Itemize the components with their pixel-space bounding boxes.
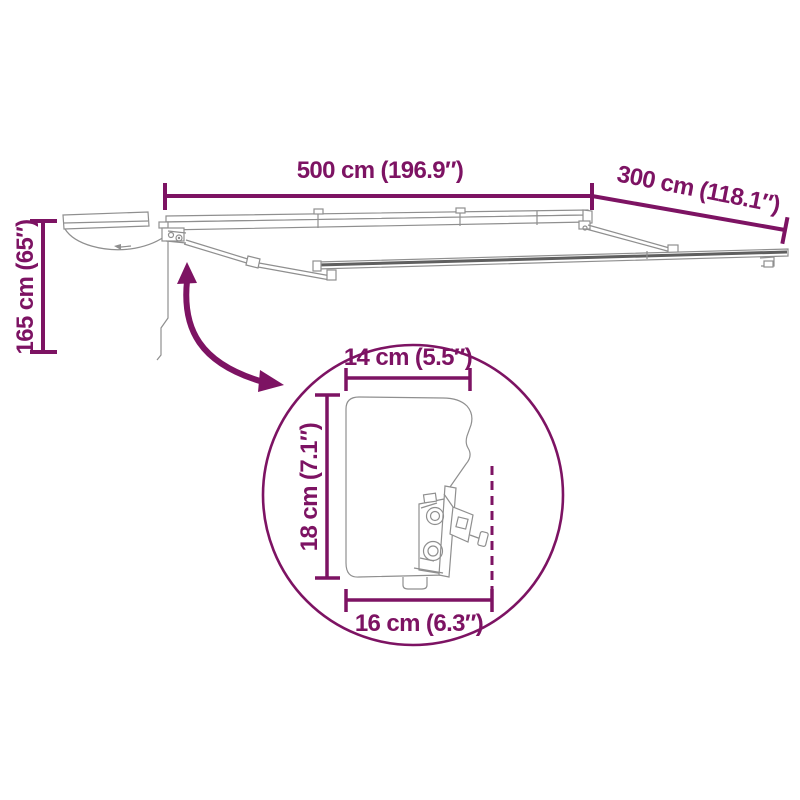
bracket-bolt-center [178, 237, 180, 239]
cassette-depth-label: 16 cm (6.3″) [355, 610, 483, 637]
cassette-width-label: 14 cm (5.5″) [344, 344, 472, 371]
cassette-height-dimension: 18 cm (7.1″) [296, 395, 340, 578]
folded-fabric-curve [65, 229, 164, 250]
rotate-arrow-icon [177, 262, 284, 392]
folded-awning-drawing [63, 212, 186, 360]
cassette-width-dimension: 14 cm (5.5″) [344, 344, 472, 391]
left-arm-segment1 [184, 244, 250, 264]
back-rail-bracket-lug [456, 208, 465, 213]
diagram-canvas: 500 cm (196.9″) 300 cm (118.1″) 165 cm (… [0, 0, 800, 800]
depth-dimension: 300 cm (118.1″) [592, 161, 787, 244]
cassette-height-label: 18 cm (7.1″) [296, 423, 323, 551]
folded-cassette-box [63, 212, 149, 229]
fabric-clip-line [121, 246, 131, 247]
left-arm-segment1 [186, 240, 251, 260]
width-dimension: 500 cm (196.9″) [165, 157, 592, 210]
arrow-head-up [177, 262, 197, 284]
back-rail-bracket-lug [314, 209, 323, 214]
extended-awning-drawing [166, 208, 788, 280]
bracket-top-lug [424, 493, 437, 503]
cassette-cross-section [346, 397, 489, 589]
height-dimension: 165 cm (65″) [12, 219, 57, 354]
front-rail-right-lug [764, 261, 773, 267]
depth-dimension-label: 300 cm (118.1″) [615, 161, 782, 219]
wall-bracket-upper [159, 222, 168, 228]
right-arm-segment [586, 229, 671, 252]
cassette-foot-tab [403, 577, 427, 589]
left-arm-front-joint [327, 270, 336, 280]
arrow-head-right [258, 370, 284, 392]
bracket-clamp [450, 507, 473, 542]
width-dimension-label: 500 cm (196.9″) [297, 157, 464, 184]
arrow-shaft [186, 281, 260, 381]
left-arm-elbow-joint [246, 256, 260, 268]
front-rail-left-cap [313, 261, 321, 271]
cassette-depth-dimension: 16 cm (6.3″) [346, 589, 492, 637]
right-arm-segment [588, 225, 673, 249]
bracket-knob [477, 531, 488, 547]
wall-post-line [157, 241, 168, 360]
height-dimension-label: 165 cm (65″) [12, 219, 39, 354]
awning-dimension-diagram: 500 cm (196.9″) 300 cm (118.1″) 165 cm (… [0, 0, 800, 800]
depth-dimension-tick-end [782, 217, 787, 244]
